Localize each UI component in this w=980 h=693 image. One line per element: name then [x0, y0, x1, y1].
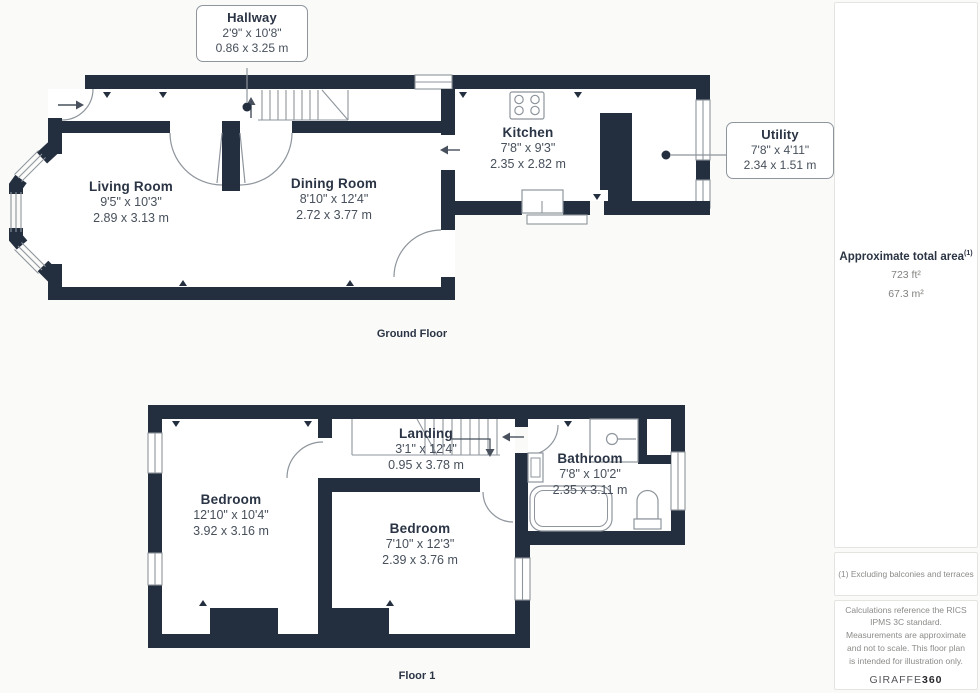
footnote-text: (1) Excluding balconies and terraces — [838, 569, 973, 579]
room-label: Hallway — [227, 10, 277, 26]
bathroom-label: Bathroom 7'8" x 10'2" 2.35 x 3.11 m — [553, 451, 628, 498]
total-area-panel: Approximate total area(1) 723 ft² 67.3 m… — [834, 2, 978, 548]
hallway-callout: Hallway 2'9" x 10'8" 0.86 x 3.25 m — [196, 5, 308, 62]
window — [671, 452, 685, 510]
toilet-icon — [634, 491, 661, 530]
floorplan-page: Hallway 2'9" x 10'8" 0.86 x 3.25 m Livin… — [0, 0, 980, 693]
floor1-caption: Floor 1 — [399, 670, 436, 682]
footnote-panel: (1) Excluding balconies and terraces — [834, 552, 978, 596]
sink-icon — [522, 190, 563, 213]
window — [696, 100, 710, 208]
living-room-label: Living Room 9'5" x 10'3" 2.89 x 3.13 m — [89, 179, 173, 226]
stove-icon — [510, 92, 544, 119]
total-area-title: Approximate total area(1) — [835, 250, 977, 263]
bedroom1-label: Bedroom 12'10" x 10'4" 3.92 x 3.16 m — [193, 492, 269, 539]
floorplan-drawing — [0, 0, 980, 693]
disclaimer-text: Calculations reference the RICS IPMS 3C … — [844, 604, 968, 668]
room-dimensions-metric: 0.86 x 3.25 m — [216, 41, 289, 56]
room-dimensions-imperial: 2'9" x 10'8" — [222, 26, 281, 41]
total-area-m: 67.3 m² — [835, 288, 977, 300]
outside-step — [527, 215, 587, 224]
basin-icon — [528, 453, 543, 482]
bedroom2-label: Bedroom 7'10" x 12'3" 2.39 x 3.76 m — [382, 521, 458, 568]
total-area-ft: 723 ft² — [835, 269, 977, 281]
window — [515, 558, 530, 600]
disclaimer-panel: Calculations reference the RICS IPMS 3C … — [834, 600, 978, 690]
kitchen-label: Kitchen 7'8" x 9'3" 2.35 x 2.82 m — [490, 125, 566, 172]
giraffe360-logo: GIRAFFE360 — [869, 674, 942, 686]
window — [415, 75, 452, 89]
utility-callout: Utility 7'8" x 4'11" 2.34 x 1.51 m — [726, 122, 834, 179]
footnote-reference: (1) — [964, 250, 973, 257]
dining-room-label: Dining Room 8'10" x 12'4" 2.72 x 3.77 m — [291, 176, 377, 223]
landing-label: Landing 3'1" x 12'4" 0.95 x 3.78 m — [388, 426, 464, 473]
ground-floor-caption: Ground Floor — [377, 328, 447, 340]
